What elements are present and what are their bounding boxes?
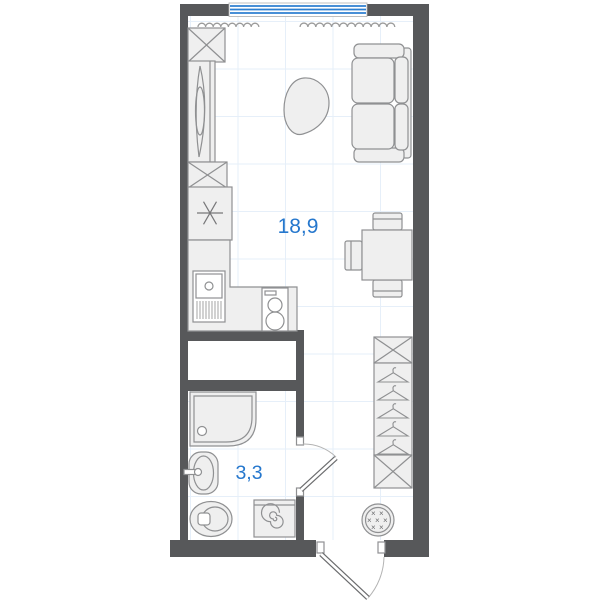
bathroom-area-label: 3,3 xyxy=(235,462,262,484)
bathroom-door xyxy=(297,437,337,496)
floor-plan-drawing: × × × × × × × xyxy=(0,0,600,600)
svg-text:×: × xyxy=(379,523,384,532)
cabinet-icon xyxy=(188,28,225,62)
living-room-area-label: 18,9 xyxy=(278,215,319,238)
sink-icon xyxy=(193,271,225,322)
svg-text:×: × xyxy=(371,523,376,532)
pouf-icon xyxy=(284,78,329,135)
washing-machine-icon xyxy=(254,500,295,537)
wardrobe-mirror-icon xyxy=(188,61,215,162)
radiator-icon xyxy=(300,23,395,27)
chair-icon xyxy=(373,280,402,297)
svg-text:×: × xyxy=(383,516,388,525)
floor-plan: × × × × × × × xyxy=(0,0,600,600)
washbasin-icon xyxy=(184,452,218,494)
dining-table-icon xyxy=(362,230,412,280)
cabinet-icon xyxy=(188,162,227,188)
closet-icon xyxy=(374,337,412,488)
stove-icon xyxy=(262,288,288,331)
sofa-icon xyxy=(352,44,411,162)
shower-icon xyxy=(190,392,256,446)
toilet-icon xyxy=(190,502,232,537)
chair-icon xyxy=(373,213,402,230)
duct-niche xyxy=(188,341,296,380)
round-pouf-icon: × × × × × × × xyxy=(362,504,394,536)
radiator-icon xyxy=(198,23,259,27)
fridge-icon xyxy=(188,187,232,240)
window-icon xyxy=(229,3,367,17)
entrance-door xyxy=(317,542,385,598)
chair-icon xyxy=(345,241,362,270)
